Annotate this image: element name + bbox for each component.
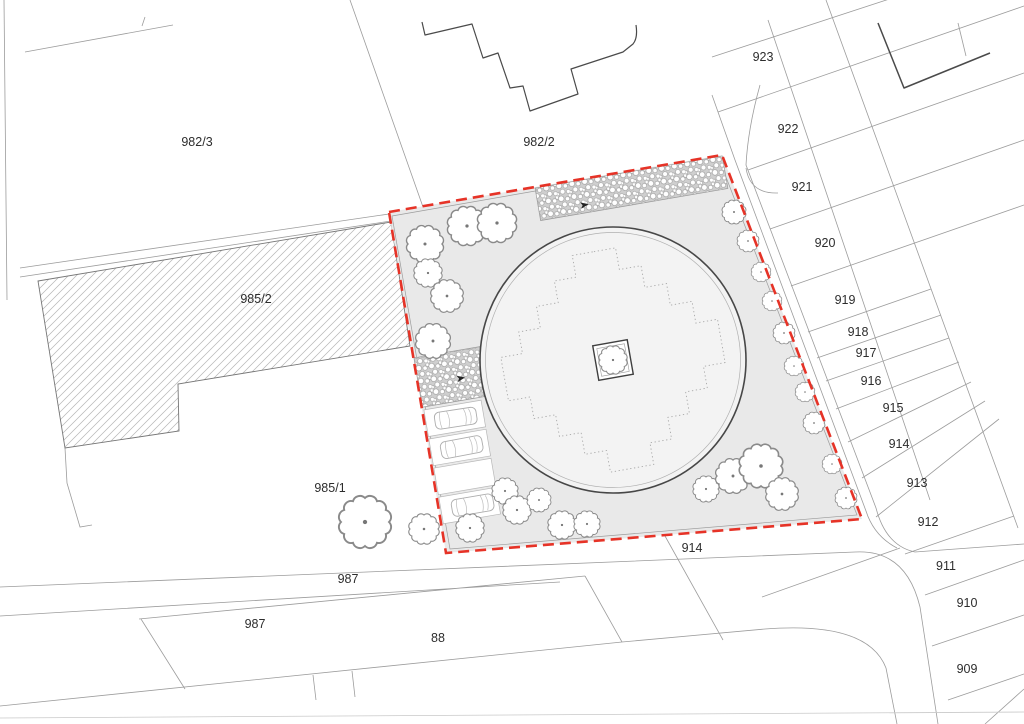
parcel-label-987-road: 987 bbox=[338, 572, 359, 586]
parcel-label-982-2: 982/2 bbox=[523, 135, 554, 149]
parcel-label-914-strip: 914 bbox=[889, 437, 910, 451]
parcel-label-918: 918 bbox=[848, 325, 869, 339]
tree-icon bbox=[339, 496, 391, 548]
parcel-label-912: 912 bbox=[918, 515, 939, 529]
parcel-label-909: 909 bbox=[957, 662, 978, 676]
parcel-label-982-3: 982/3 bbox=[181, 135, 212, 149]
tree-icon bbox=[784, 356, 804, 376]
tree-icon bbox=[477, 203, 516, 242]
parcel-label-921: 921 bbox=[792, 180, 813, 194]
parcel-label-913: 913 bbox=[907, 476, 928, 490]
parcel-label-916: 916 bbox=[861, 374, 882, 388]
parcel-label-987: 987 bbox=[245, 617, 266, 631]
parcel-label-920: 920 bbox=[815, 236, 836, 250]
tree-icon bbox=[456, 514, 484, 542]
parcel-label-915: 915 bbox=[883, 401, 904, 415]
parcel-label-910: 910 bbox=[957, 596, 978, 610]
parcel-label-88: 88 bbox=[431, 631, 445, 645]
parcel-label-922: 922 bbox=[778, 122, 799, 136]
tree-icon bbox=[574, 511, 600, 537]
building-hatched-985-2 bbox=[38, 222, 410, 448]
tree-icon bbox=[527, 488, 551, 512]
tree-icon bbox=[722, 200, 746, 224]
tree-icon bbox=[766, 478, 799, 511]
parcel-label-919: 919 bbox=[835, 293, 856, 307]
tree-icon bbox=[416, 324, 451, 359]
circular-plaza bbox=[480, 227, 746, 493]
parcel-label-985-1: 985/1 bbox=[314, 481, 345, 495]
tree-icon bbox=[431, 280, 464, 313]
tree-icon bbox=[503, 496, 531, 524]
tree-icon bbox=[548, 511, 576, 539]
parcel-label-917: 917 bbox=[856, 346, 877, 360]
road-987 bbox=[0, 552, 938, 724]
tree-icon bbox=[409, 514, 439, 544]
building-corner-top-right bbox=[878, 23, 990, 88]
tree-icon bbox=[599, 346, 627, 374]
parcel-label-923: 923 bbox=[753, 50, 774, 64]
parcel-label-911: 911 bbox=[936, 559, 956, 573]
tree-icon bbox=[822, 454, 842, 474]
parcel-label-985-2: 985/2 bbox=[240, 292, 271, 306]
site-plan-canvas: 982/3 982/2 985/2 985/1 987 987 88 914 9… bbox=[0, 0, 1024, 724]
tree-icon bbox=[407, 226, 444, 263]
parcel-label-914-south: 914 bbox=[682, 541, 703, 555]
site-plan: 982/3 982/2 985/2 985/1 987 987 88 914 9… bbox=[0, 0, 1024, 724]
building-outline-982-2 bbox=[422, 22, 637, 111]
